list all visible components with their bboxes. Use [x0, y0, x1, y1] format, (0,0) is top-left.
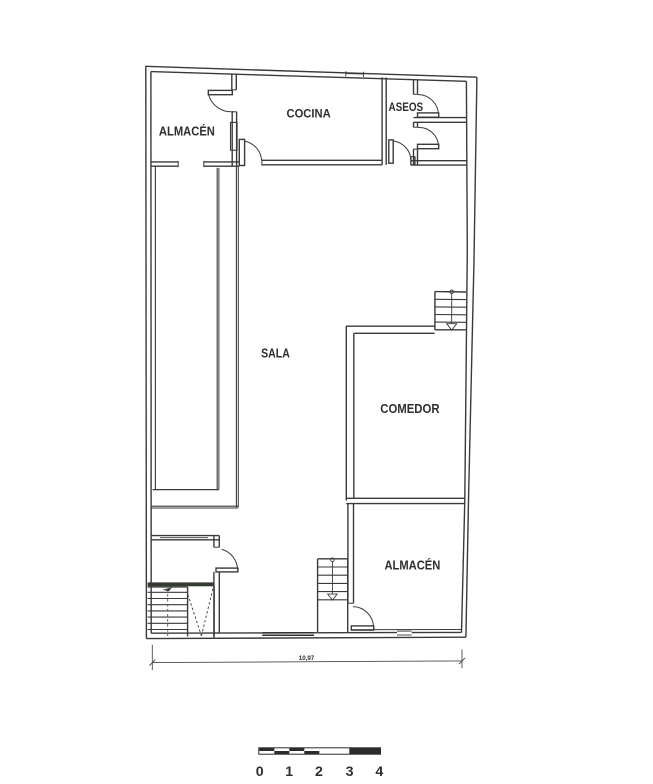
svg-text:3: 3 [346, 764, 354, 780]
svg-text:4: 4 [375, 764, 383, 780]
svg-text:1: 1 [285, 764, 293, 780]
svg-text:COCINA: COCINA [287, 106, 331, 120]
svg-text:ASEOS: ASEOS [388, 100, 423, 114]
svg-text:0: 0 [256, 764, 264, 780]
svg-text:10,97: 10,97 [299, 655, 315, 662]
svg-text:2: 2 [315, 764, 323, 780]
svg-text:SALA: SALA [261, 347, 290, 361]
svg-text:COMEDOR: COMEDOR [380, 402, 439, 416]
svg-text:ALMACÉN: ALMACÉN [385, 558, 441, 573]
svg-text:ALMACÉN: ALMACÉN [159, 123, 215, 138]
